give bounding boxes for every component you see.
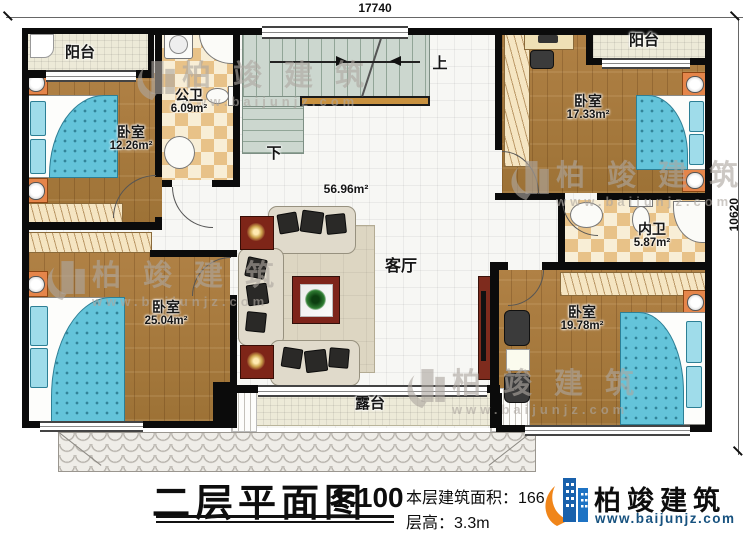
wall <box>542 262 712 270</box>
sofa-cushion <box>304 349 329 374</box>
wall <box>136 70 154 78</box>
floor-height-text: 层高：3.3m <box>406 509 490 533</box>
sheet-scale: 1:100 <box>332 482 404 514</box>
bed <box>620 312 707 425</box>
window <box>40 421 143 432</box>
pillow <box>689 134 704 165</box>
sofa-cushion <box>276 211 299 234</box>
wardrobe <box>27 232 152 253</box>
window <box>525 425 690 436</box>
lamp-icon <box>27 276 44 294</box>
pillow <box>686 366 702 408</box>
wall <box>150 250 237 257</box>
room-label-balcony-left: 阳台 <box>50 45 110 62</box>
wall <box>597 193 712 200</box>
plant-icon <box>305 289 326 310</box>
lamp-icon <box>27 182 44 199</box>
bed-spread <box>636 95 688 170</box>
side-table <box>240 216 274 250</box>
pillow <box>30 306 48 346</box>
lamp-icon <box>686 172 703 189</box>
tv-icon <box>481 291 486 361</box>
sofa-cushion <box>325 213 347 235</box>
nightstand <box>682 72 707 96</box>
wall <box>586 58 602 65</box>
nightstand <box>682 168 707 192</box>
dresser-tv-icon <box>538 35 558 43</box>
room-label-terrace: 露台 <box>344 396 396 413</box>
wall <box>495 193 562 200</box>
dimension-tick <box>3 11 13 21</box>
armchair <box>504 373 530 403</box>
bed-spread <box>620 312 684 425</box>
sofa-cushion <box>244 256 268 280</box>
sofa-cushion <box>281 347 304 370</box>
side-table <box>506 349 530 371</box>
room-label-bedroom-top-right: 卧室17.33m² <box>556 94 620 122</box>
chair <box>530 50 554 69</box>
bed <box>636 95 707 170</box>
wall <box>495 28 502 150</box>
pillow <box>30 139 46 174</box>
wall <box>230 250 237 257</box>
wall <box>690 425 712 432</box>
pillow <box>30 101 46 136</box>
dimension-height: 10620 <box>727 198 741 231</box>
dimension-width: 17740 <box>340 1 410 15</box>
room-label-bedroom-top-left: 卧室12.26m² <box>100 125 162 153</box>
brand-url: www.baijunjz.com <box>595 511 736 526</box>
wall <box>162 180 172 187</box>
wardrobe <box>27 203 123 224</box>
lower-roof-tiles <box>58 432 536 472</box>
sofa-cushion <box>300 210 325 235</box>
dimension-line-right <box>738 18 739 455</box>
sofa-cushion <box>245 311 267 333</box>
wall <box>705 28 712 432</box>
pillow <box>686 321 702 363</box>
room-label-bedroom-bottom-left: 卧室25.04m² <box>134 300 198 328</box>
stairs-arrow-left-icon <box>390 56 401 66</box>
wall <box>22 421 40 428</box>
brand-logo-icon <box>543 474 591 532</box>
side-table <box>240 345 274 379</box>
wall <box>230 295 237 422</box>
window <box>46 70 136 82</box>
stairs-handrail <box>300 96 430 106</box>
bed <box>25 297 124 422</box>
floor-area-text: 本层建筑面积：166. <box>406 484 549 508</box>
wall <box>212 180 240 187</box>
wall <box>233 28 240 187</box>
room-label-balcony-right: 阳台 <box>615 33 673 50</box>
wardrobe <box>504 32 530 167</box>
room-label-bedroom-bottom-right: 卧室19.78m² <box>550 305 614 333</box>
bed-spread <box>51 297 125 422</box>
wall <box>154 28 262 35</box>
armchair <box>504 310 530 346</box>
window <box>262 26 408 39</box>
floor-plan-sheet: 17740 10620 柏竣建筑 www.baijunjz.com 柏竣建筑 w… <box>0 0 750 541</box>
room-label-living: 客厅 <box>375 258 427 276</box>
wall <box>213 382 231 428</box>
title-underline <box>156 521 394 523</box>
wall <box>487 385 500 393</box>
living-area-label: 56.96m² <box>315 183 377 196</box>
wall <box>237 385 258 393</box>
wall <box>22 28 154 34</box>
title-underline <box>156 515 394 518</box>
room-label-bath-public: 公卫6.09m² <box>158 88 220 116</box>
washer-drum-icon <box>169 35 188 54</box>
stairs-arrow-right-icon <box>336 56 347 66</box>
table-lamp-icon <box>247 352 265 370</box>
lamp-icon <box>687 294 704 311</box>
sofa-cushion <box>246 283 270 307</box>
stairs-up-label: 上 <box>428 56 452 73</box>
window <box>602 58 690 69</box>
coffee-table <box>292 276 340 324</box>
table-lamp-icon <box>247 223 265 241</box>
sofa-cushion <box>328 347 350 369</box>
dimension-tick <box>730 11 740 21</box>
pillow <box>689 101 704 132</box>
stairs-down-label: 下 <box>262 146 286 163</box>
lamp-icon <box>686 76 703 93</box>
wall <box>22 70 29 428</box>
pillow <box>30 348 48 388</box>
room-label-bath-inner: 内卫5.87m² <box>622 222 682 250</box>
dimension-line-top <box>6 17 743 18</box>
wall <box>490 393 502 428</box>
wall <box>22 222 162 230</box>
nightstand <box>683 290 707 314</box>
sink <box>164 136 195 169</box>
